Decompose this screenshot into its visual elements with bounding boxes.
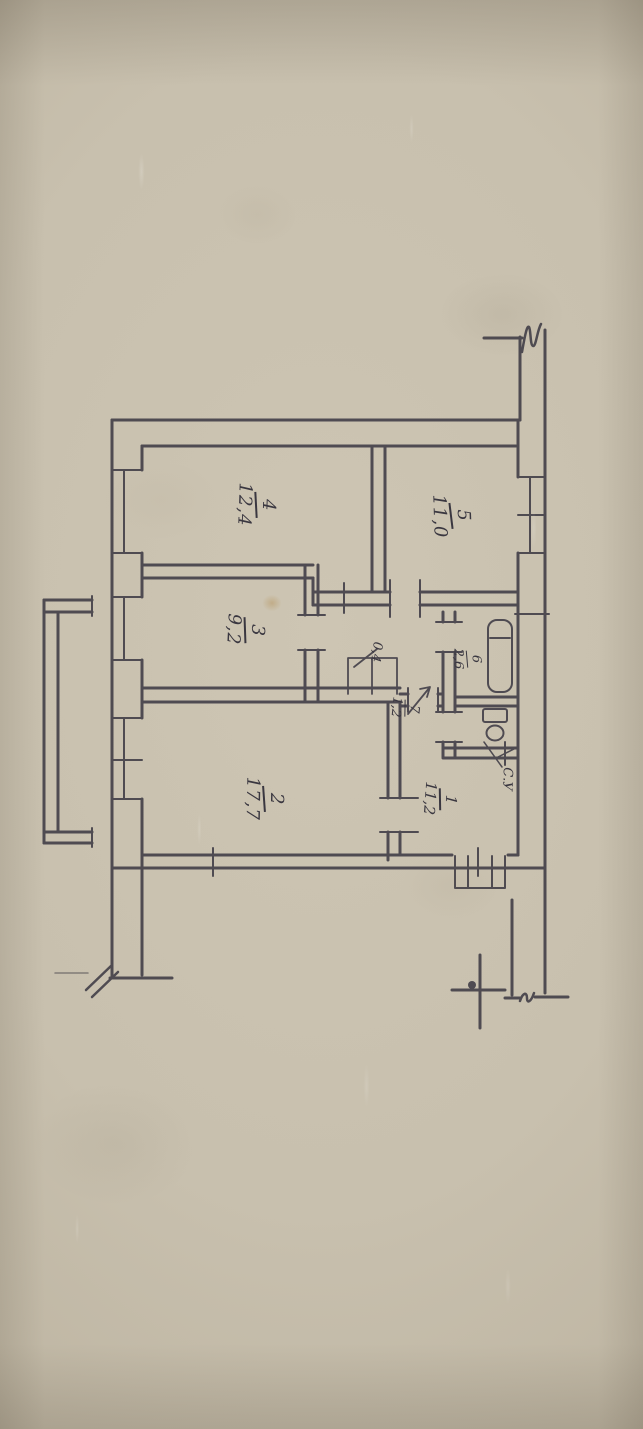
wall-extension-bottom-right (452, 900, 568, 1028)
room-area: 2,6 (452, 649, 465, 670)
room-number: 6 (470, 655, 483, 663)
room-number: 3 (248, 624, 267, 637)
room-area: 11,2 (421, 781, 438, 815)
window-room4 (112, 470, 142, 553)
toilet-icon (483, 709, 507, 741)
room-area: 1,2 (389, 696, 404, 718)
wall-break-mark-bottom (520, 993, 534, 1001)
window-room3 (112, 597, 142, 660)
fraction-bar (404, 699, 405, 716)
room-area: 17,7 (243, 777, 262, 821)
fraction-bar (439, 788, 441, 810)
room-number: 1 (443, 794, 459, 805)
room-number: 5 (454, 509, 472, 522)
room-number: 2 (267, 793, 285, 806)
window-room5 (518, 477, 545, 553)
room-number: 7 (407, 704, 421, 714)
fraction-bar (244, 617, 247, 643)
window-room2 (112, 718, 142, 799)
floor-plan-photo: 4 12,4 5 11,0 3 9,2 2 17,7 6 2,6 (0, 0, 643, 1429)
room-number: 4 (259, 499, 277, 512)
bathtub-icon (488, 620, 512, 692)
room-area: 11,0 (429, 494, 449, 539)
room-area: 12,4 (234, 482, 254, 527)
room-area: 9,2 (223, 613, 243, 646)
wall-extension-top-right (484, 324, 541, 420)
leader-to-toilet (484, 742, 502, 767)
balcony-left (44, 596, 92, 847)
balcony-door-unit-bottom (455, 856, 505, 888)
plan-linework (0, 0, 643, 1429)
wall-break-mark-top (522, 324, 541, 352)
